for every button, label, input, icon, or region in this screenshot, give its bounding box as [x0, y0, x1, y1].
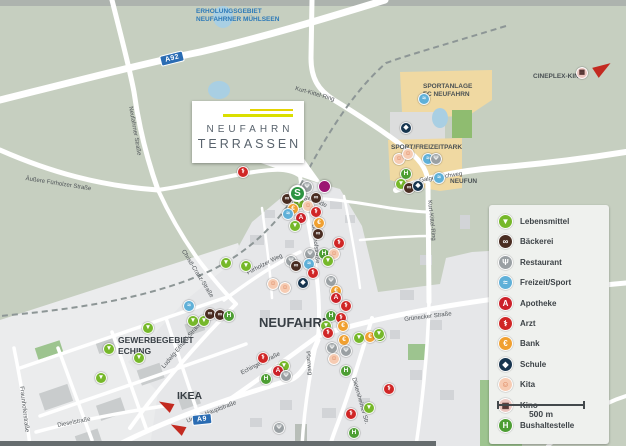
marker-freizeit-icon[interactable]: ≈ [183, 300, 195, 312]
marker-freizeit-icon[interactable]: ≈ [418, 93, 430, 105]
marker-lebensmittel-icon[interactable]: ▼ [363, 402, 375, 414]
legend-label-kita: Kita [520, 380, 535, 389]
legend-apotheke-icon: A [498, 296, 513, 311]
legend-item-lebensmittel: ▼Lebensmittel [498, 214, 600, 229]
marker-arzt-icon[interactable]: ⚕ [345, 408, 357, 420]
marker-kino-icon[interactable]: ▦ [576, 67, 588, 79]
marker-schule-icon[interactable]: ◆ [297, 277, 309, 289]
marker-kita-icon[interactable]: ☺ [402, 148, 414, 160]
legend-label-restaurant: Restaurant [520, 258, 562, 267]
area-label-erholungsgebiet: ERHOLUNGSGEBIET NEUFAHRNER MÜHLSEEN [196, 8, 279, 24]
legend-item-apotheke: AApotheke [498, 296, 600, 311]
marker-lebensmittel-icon[interactable]: ▼ [95, 372, 107, 384]
neufahrn-terrassen-logo: NEUFAHRN TERRASSEN [192, 101, 304, 163]
legend-lebensmittel-icon: ▼ [498, 214, 513, 229]
marker-lebensmittel-icon[interactable]: ▼ [289, 220, 301, 232]
marker-lebensmittel-icon[interactable]: ▼ [240, 260, 252, 272]
marker-lebensmittel-icon[interactable]: ▼ [322, 255, 334, 267]
marker-bus-icon[interactable]: H [340, 365, 352, 377]
marker-freizeit-icon[interactable]: ≈ [433, 172, 445, 184]
logo-stripe-1 [250, 109, 293, 111]
marker-restaurant-icon[interactable]: Ψ [340, 345, 352, 357]
marker-bus-icon[interactable]: H [260, 373, 272, 385]
logo-stripe-2 [223, 114, 292, 117]
marker-restaurant-icon[interactable]: Ψ [430, 153, 442, 165]
area-label-neufun: NEUFUN [450, 178, 477, 186]
legend-restaurant-icon: Ψ [498, 255, 513, 270]
legend-label-bus: Bushaltestelle [520, 421, 574, 430]
street-label-dieselstrasse: Dieselstraße [57, 417, 91, 429]
legend-label-lebensmittel: Lebensmittel [520, 217, 569, 226]
marker-kita-icon[interactable]: ☺ [267, 278, 279, 290]
ikea-arrow-2-icon [169, 420, 187, 436]
legend-bank-icon: € [498, 336, 513, 351]
marker-baeckerei-icon[interactable]: ∞ [290, 260, 302, 272]
legend-item-schule: ◆Schule [498, 357, 600, 372]
marker-arzt-icon[interactable]: ⚕ [237, 166, 249, 178]
legend-item-freizeit: ≈Freizeit/Sport [498, 275, 600, 290]
scale-bar-line [497, 404, 585, 406]
marker-lebensmittel-icon[interactable]: ▼ [220, 257, 232, 269]
street-label-kurt-kittel-ring-east: Kurt-Kittel-Ring [426, 200, 436, 241]
marker-lebensmittel-icon[interactable]: ▼ [142, 322, 154, 334]
legend-label-freizeit: Freizeit/Sport [520, 278, 571, 287]
marker-baeckerei-icon[interactable]: ∞ [312, 228, 324, 240]
street-label-fraunhoferstrasse: Fraunhoferstraße [18, 386, 30, 433]
marker-kita-icon[interactable]: ☺ [328, 353, 340, 365]
marker-arzt-icon[interactable]: ⚕ [383, 383, 395, 395]
legend-arzt-icon: ⚕ [498, 316, 513, 331]
legend-freizeit-icon: ≈ [498, 275, 513, 290]
legend-item-bank: €Bank [498, 336, 600, 351]
street-label-pfarrweg: Pfarrweg [304, 351, 312, 376]
legend-item-restaurant: ΨRestaurant [498, 255, 600, 270]
marker-restaurant-icon[interactable]: Ψ [273, 422, 285, 434]
marker-freizeit-icon[interactable]: ≈ [282, 208, 294, 220]
legend-label-bank: Bank [520, 339, 540, 348]
street-label-aeussere-fuerholzer-strasse: Äußere Fürholzer Straße [25, 176, 91, 192]
street-label-christl-cranz-strasse: Christl-Cranz-Straße [180, 249, 214, 299]
highway-badge-a9: A9 [191, 413, 212, 426]
legend-schule-icon: ◆ [498, 357, 513, 372]
legend-label-baeckerei: Bäckerei [520, 237, 553, 246]
highway-badge-a92: A92 [159, 50, 185, 67]
marker-bus-icon[interactable]: H [348, 427, 360, 439]
marker-arzt-icon[interactable]: ⚕ [307, 267, 319, 279]
street-label-gruenecker-strasse: Grünecker Straße [404, 311, 452, 323]
marker-kita-icon[interactable]: ☺ [279, 282, 291, 294]
legend-kita-icon: ☺ [498, 377, 513, 392]
marker-schule-icon[interactable]: ◆ [400, 122, 412, 134]
legend-label-apotheke: Apotheke [520, 299, 556, 308]
marker-arzt-icon[interactable]: ⚕ [322, 327, 334, 339]
sbahn-station-icon[interactable]: S [289, 185, 306, 202]
marker-schule-icon[interactable]: ◆ [412, 180, 424, 192]
logo-subtitle: TERRASSEN [192, 137, 304, 151]
area-label-ikea: IKEA [177, 390, 202, 403]
marker-arzt-icon[interactable]: ⚕ [340, 300, 352, 312]
marker-arzt-icon[interactable]: ⚕ [257, 352, 269, 364]
marker-lebensmittel-icon[interactable]: ▼ [133, 352, 145, 364]
marker-restaurant-icon[interactable]: Ψ [280, 370, 292, 382]
ikea-arrow-1-icon [157, 397, 175, 413]
marker-lebensmittel-icon[interactable]: ▼ [373, 328, 385, 340]
site-location-marker[interactable] [318, 180, 331, 193]
legend-item-baeckerei: ∞Bäckerei [498, 234, 600, 249]
legend-bus-icon: H [498, 418, 513, 433]
map-canvas: ERHOLUNGSGEBIET NEUFAHRNER MÜHLSEENSPORT… [0, 0, 626, 446]
legend-item-arzt: ⚕Arzt [498, 316, 600, 331]
legend-label-arzt: Arzt [520, 319, 536, 328]
legend-item-kita: ☺Kita [498, 377, 600, 392]
legend-item-bus: HBushaltestelle [498, 418, 600, 433]
scale-bar-label: 500 m [497, 409, 585, 419]
logo-title: NEUFAHRN [192, 124, 304, 135]
area-label-sportanlage: SPORTANLAGE FC NEUFAHRN [423, 83, 472, 99]
legend-baeckerei-icon: ∞ [498, 234, 513, 249]
cineplex-arrow-icon [592, 58, 614, 78]
marker-bank-icon[interactable]: € [337, 320, 349, 332]
marker-bus-icon[interactable]: H [223, 310, 235, 322]
marker-lebensmittel-icon[interactable]: ▼ [103, 343, 115, 355]
street-label-neufahrner-strasse: Neufahrner Straße [127, 106, 142, 156]
legend-label-schule: Schule [520, 360, 546, 369]
scale-bar: 500 m [497, 404, 585, 419]
